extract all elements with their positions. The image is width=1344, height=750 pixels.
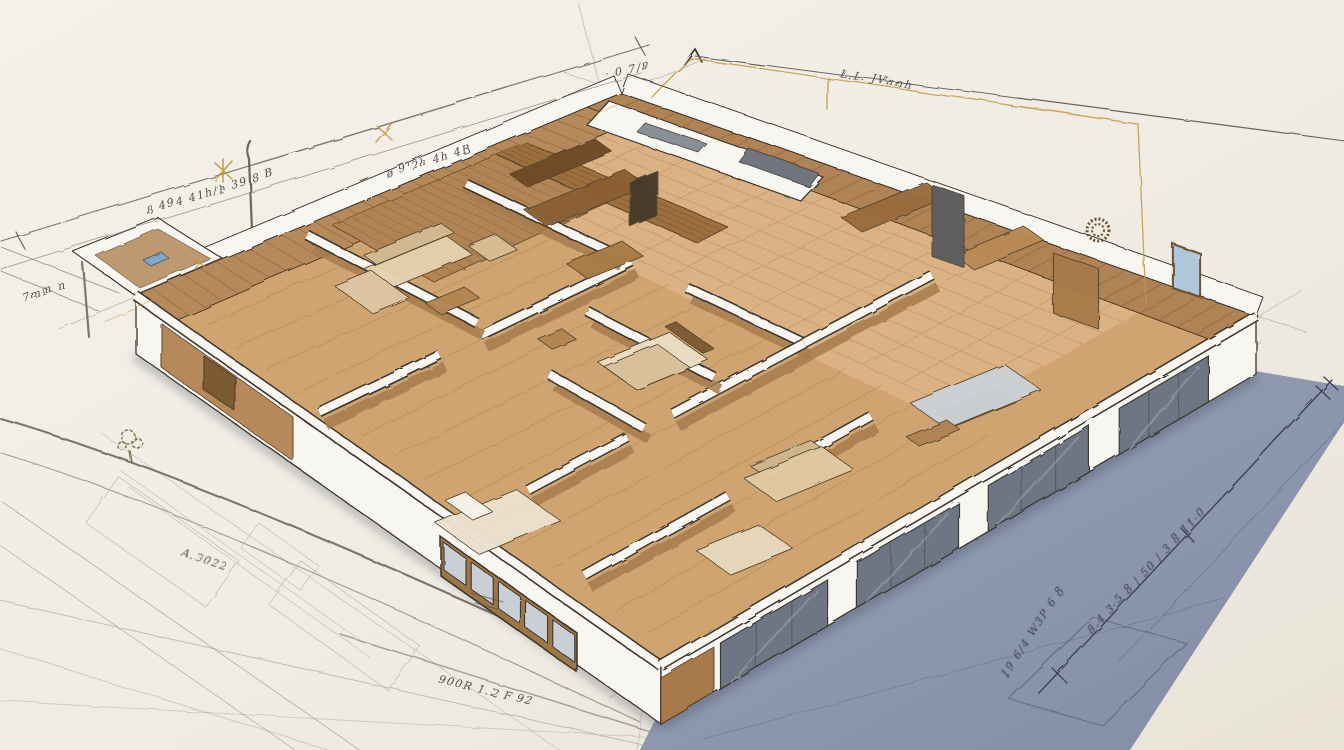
- sketch-page: 8 494 41h/b 39.8 B ø 9'2h 4h 4B · 0 7/8 …: [0, 0, 1344, 750]
- furniture-window-ne: [1172, 243, 1200, 297]
- floorplan-sketch-canvas: 8 494 41h/b 39.8 B ø 9'2h 4h 4B · 0 7/8 …: [0, 0, 1344, 750]
- furniture-curtain: [931, 183, 963, 266]
